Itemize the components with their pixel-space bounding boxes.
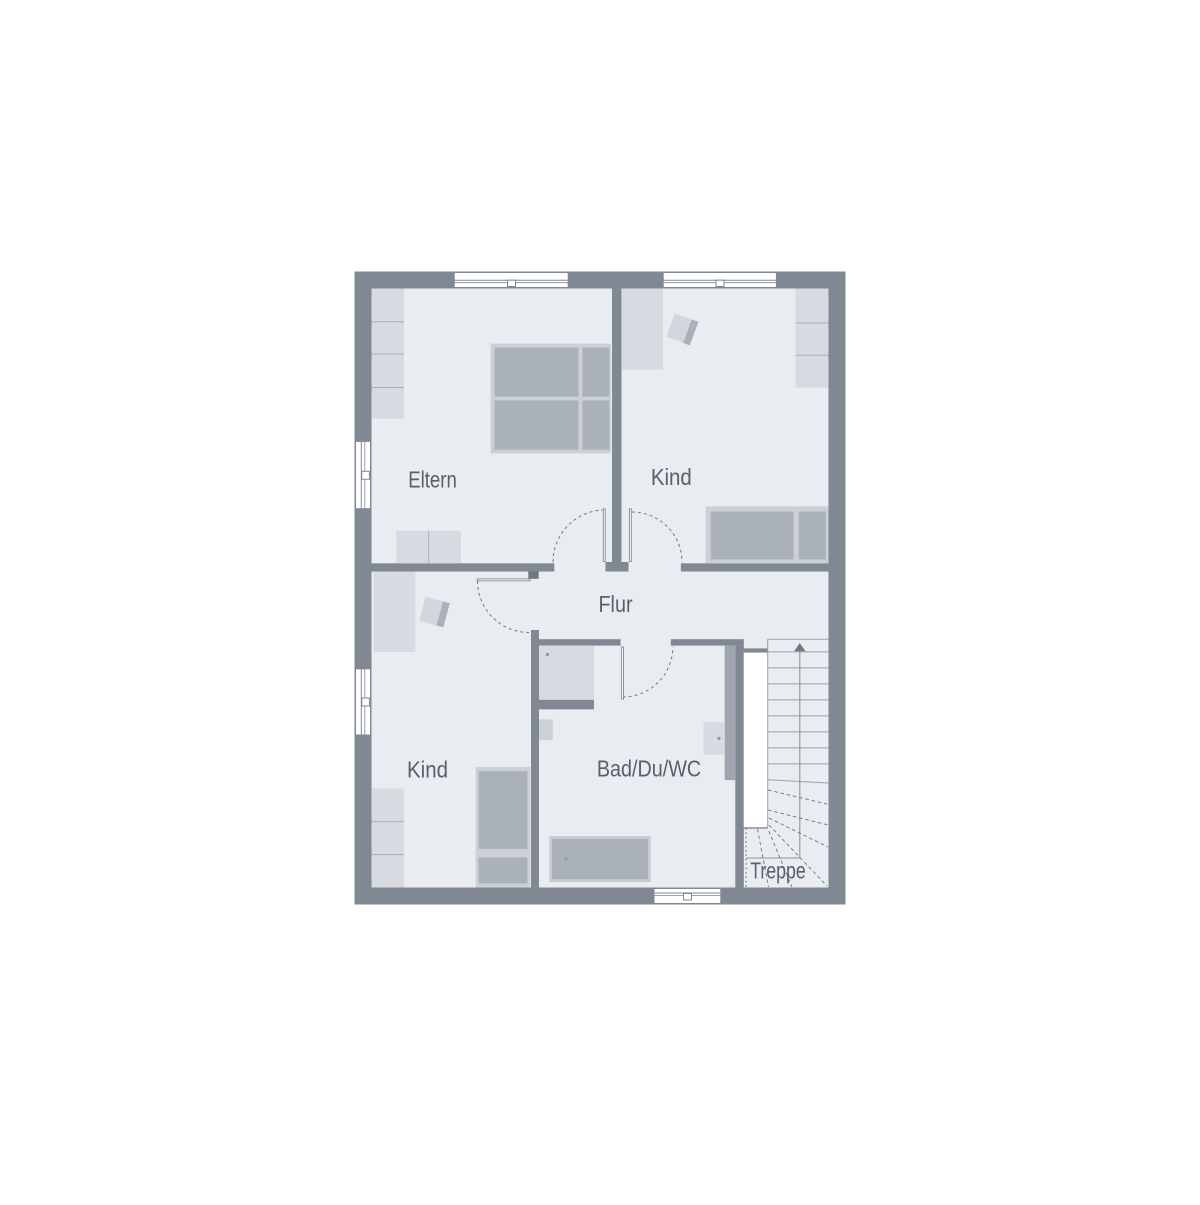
svg-text:Kind: Kind [651,464,692,490]
svg-text:Flur: Flur [598,592,632,618]
svg-text:Eltern: Eltern [408,468,457,493]
svg-text:Kind: Kind [407,756,448,782]
svg-text:Bad/Du/WC: Bad/Du/WC [597,756,701,782]
svg-text:Treppe: Treppe [750,858,806,884]
